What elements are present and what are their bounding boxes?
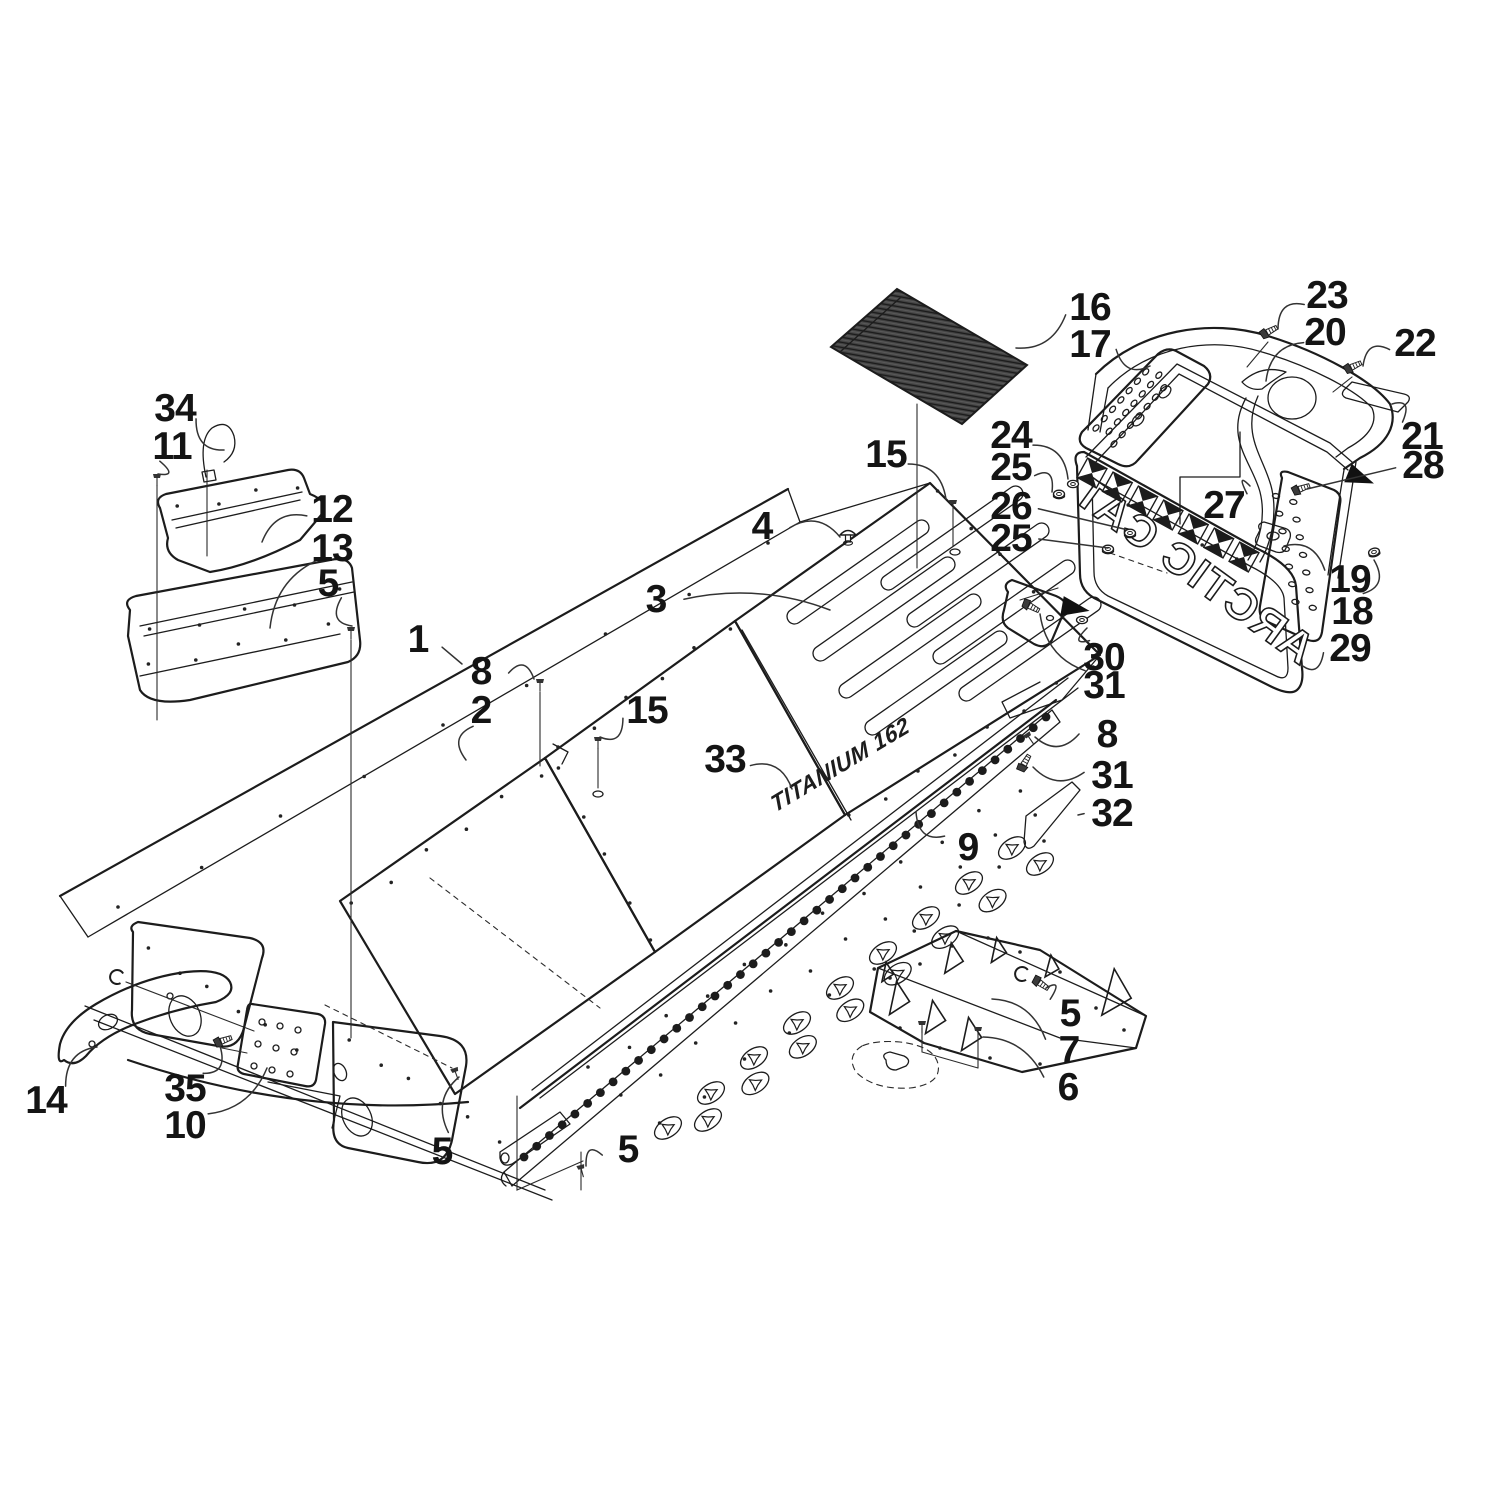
cable-tie — [203, 424, 235, 477]
part-callouts: 3411121351821534151617232022212824252625… — [25, 274, 1444, 1173]
rivet-screw-icon — [594, 737, 602, 749]
leader-line — [1033, 767, 1084, 781]
leader-line — [600, 718, 623, 739]
part-callout-10-39: 10 — [164, 1104, 206, 1147]
part-callout-17-13: 17 — [1069, 323, 1110, 366]
part-callout-12-2: 12 — [311, 488, 353, 531]
bolt-icon — [1343, 358, 1364, 375]
part-callout-14-37: 14 — [25, 1079, 68, 1122]
plate-perforations-left — [1092, 368, 1168, 449]
guide-lines — [157, 342, 1352, 1068]
leader-line — [1035, 734, 1079, 747]
part-callout-3-9: 3 — [646, 578, 667, 621]
plate-10-holes — [251, 1019, 301, 1077]
washer-icon — [1077, 616, 1088, 623]
leader-line — [983, 1037, 1044, 1077]
part-callout-28-18: 28 — [1402, 444, 1444, 487]
c-clip-icon — [1014, 966, 1028, 982]
part-callout-5-40: 5 — [432, 1130, 453, 1173]
rivet-screw-icon — [536, 679, 544, 691]
wear-strip-32 — [1024, 782, 1080, 848]
leader-line — [1363, 346, 1390, 366]
part-callout-6-36: 6 — [1058, 1066, 1079, 1109]
footrest — [852, 931, 1146, 1088]
rivet-screw-icon — [918, 1021, 926, 1033]
leader-line — [992, 999, 1046, 1039]
reinforcement-plate-10 — [238, 1004, 326, 1087]
bumper-trim-strip — [1342, 382, 1409, 412]
washer-icon — [1068, 480, 1079, 487]
part-callout-25-20: 25 — [990, 446, 1032, 489]
leader-line — [66, 1047, 97, 1086]
part-callout-25-22: 25 — [990, 517, 1032, 560]
part-callout-27-23: 27 — [1203, 484, 1244, 527]
part-callout-9-33: 9 — [958, 826, 979, 869]
part-callout-4-10: 4 — [752, 505, 774, 548]
leader-line — [1035, 473, 1053, 492]
leader-line — [684, 593, 830, 610]
nut-icon — [1125, 529, 1136, 538]
leader-line — [336, 598, 352, 626]
bolt-icon — [1031, 974, 1051, 993]
leader-line — [262, 515, 307, 542]
bumper-plate-left — [1080, 349, 1211, 466]
running-board-rail — [500, 710, 1060, 1190]
part-callout-31-28: 31 — [1083, 664, 1125, 707]
nut-icon — [1054, 490, 1065, 499]
part-callout-5-4: 5 — [318, 562, 339, 605]
leader-line — [196, 419, 224, 450]
part-callout-33-32: 33 — [704, 738, 746, 781]
part-callout-5-41: 5 — [618, 1128, 639, 1171]
part-callout-1-5: 1 — [408, 618, 429, 661]
parts-diagram-page: TITANIUM 162 — [0, 0, 1500, 1500]
part-callout-8-29: 8 — [1097, 713, 1118, 756]
rivet-screw-icon — [153, 474, 161, 486]
part-callout-2-7: 2 — [471, 689, 492, 732]
leader-line — [1278, 304, 1304, 329]
parts-diagram-canvas: TITANIUM 162 — [0, 0, 1500, 1500]
heat-shield-upper — [158, 470, 324, 572]
bracket-14 — [59, 971, 232, 1063]
leader-line — [1039, 539, 1108, 548]
leader-line — [586, 1150, 602, 1166]
part-callout-8-6: 8 — [471, 650, 492, 693]
leader-lines — [66, 304, 1406, 1166]
nut-icon — [1103, 545, 1114, 554]
part-callout-20-15: 20 — [1304, 311, 1346, 354]
bolt-icon — [1021, 598, 1042, 615]
part-callout-31-30: 31 — [1091, 754, 1133, 797]
leader-line — [1266, 343, 1304, 381]
traction-mat — [831, 289, 1027, 424]
part-callout-15-11: 15 — [865, 433, 907, 476]
part-callout-29-26: 29 — [1329, 627, 1371, 670]
c-clip-icon — [109, 968, 124, 985]
leader-line — [790, 521, 840, 537]
leader-line — [1016, 315, 1066, 348]
part-callout-22-16: 22 — [1394, 322, 1436, 365]
part-callout-15-8: 15 — [626, 689, 668, 732]
leader-line — [509, 665, 534, 679]
leader-line — [442, 647, 462, 664]
bolt-icon — [1016, 753, 1034, 774]
part-callout-32-31: 32 — [1091, 792, 1133, 835]
nut-icon — [1368, 547, 1381, 558]
part-callout-34-0: 34 — [154, 387, 197, 430]
part-callout-11-1: 11 — [152, 425, 192, 468]
rivet-screw-icon — [347, 627, 355, 639]
leader-line — [1046, 985, 1056, 999]
leader-line — [1078, 814, 1084, 815]
